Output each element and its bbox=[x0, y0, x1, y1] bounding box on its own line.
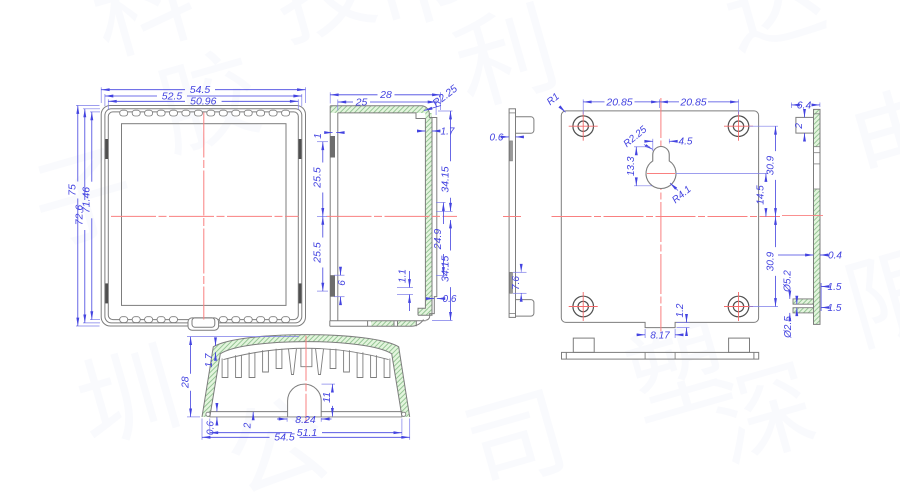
svg-text:6.4: 6.4 bbox=[797, 99, 812, 111]
svg-text:28: 28 bbox=[179, 376, 191, 389]
svg-text:25.5: 25.5 bbox=[312, 167, 324, 189]
svg-text:0.4: 0.4 bbox=[828, 250, 842, 261]
svg-text:25: 25 bbox=[355, 96, 368, 108]
svg-text:30.9: 30.9 bbox=[765, 155, 776, 175]
svg-text:25.5: 25.5 bbox=[312, 242, 324, 264]
svg-text:52.5: 52.5 bbox=[162, 90, 183, 102]
svg-text:50.96: 50.96 bbox=[190, 96, 216, 108]
svg-text:75: 75 bbox=[67, 184, 79, 196]
svg-text:24.9: 24.9 bbox=[432, 229, 444, 251]
svg-text:1.7: 1.7 bbox=[441, 126, 455, 137]
svg-text:8.24: 8.24 bbox=[295, 414, 316, 426]
svg-text:34.15: 34.15 bbox=[439, 256, 451, 282]
svg-text:11: 11 bbox=[321, 392, 333, 403]
svg-text:1: 1 bbox=[313, 133, 324, 139]
svg-text:13.3: 13.3 bbox=[626, 156, 637, 176]
svg-text:1.2: 1.2 bbox=[675, 303, 686, 317]
svg-text:Ø2.5: Ø2.5 bbox=[783, 316, 794, 339]
svg-text:2: 2 bbox=[794, 123, 805, 130]
svg-text:6: 6 bbox=[337, 280, 348, 286]
svg-text:34.15: 34.15 bbox=[439, 166, 451, 192]
svg-text:20.85: 20.85 bbox=[605, 96, 632, 108]
svg-text:14.5: 14.5 bbox=[756, 185, 767, 205]
svg-text:1.1: 1.1 bbox=[398, 269, 409, 283]
svg-text:Ø5.2: Ø5.2 bbox=[783, 270, 794, 293]
svg-text:0.6: 0.6 bbox=[443, 294, 457, 305]
svg-text:1.5: 1.5 bbox=[828, 303, 842, 314]
svg-text:8.17: 8.17 bbox=[650, 330, 670, 341]
svg-text:54.5: 54.5 bbox=[274, 432, 295, 444]
svg-text:1.7: 1.7 bbox=[204, 353, 215, 367]
svg-text:28: 28 bbox=[379, 89, 392, 101]
svg-text:4.5: 4.5 bbox=[679, 137, 693, 148]
svg-text:7.6: 7.6 bbox=[511, 276, 522, 290]
svg-text:30.9: 30.9 bbox=[765, 251, 776, 271]
svg-text:0.6: 0.6 bbox=[490, 132, 504, 143]
svg-text:1.5: 1.5 bbox=[828, 282, 842, 293]
svg-text:71.46: 71.46 bbox=[81, 187, 93, 213]
svg-text:2: 2 bbox=[243, 422, 254, 429]
svg-text:54.5: 54.5 bbox=[190, 84, 211, 96]
svg-text:20.85: 20.85 bbox=[679, 96, 706, 108]
